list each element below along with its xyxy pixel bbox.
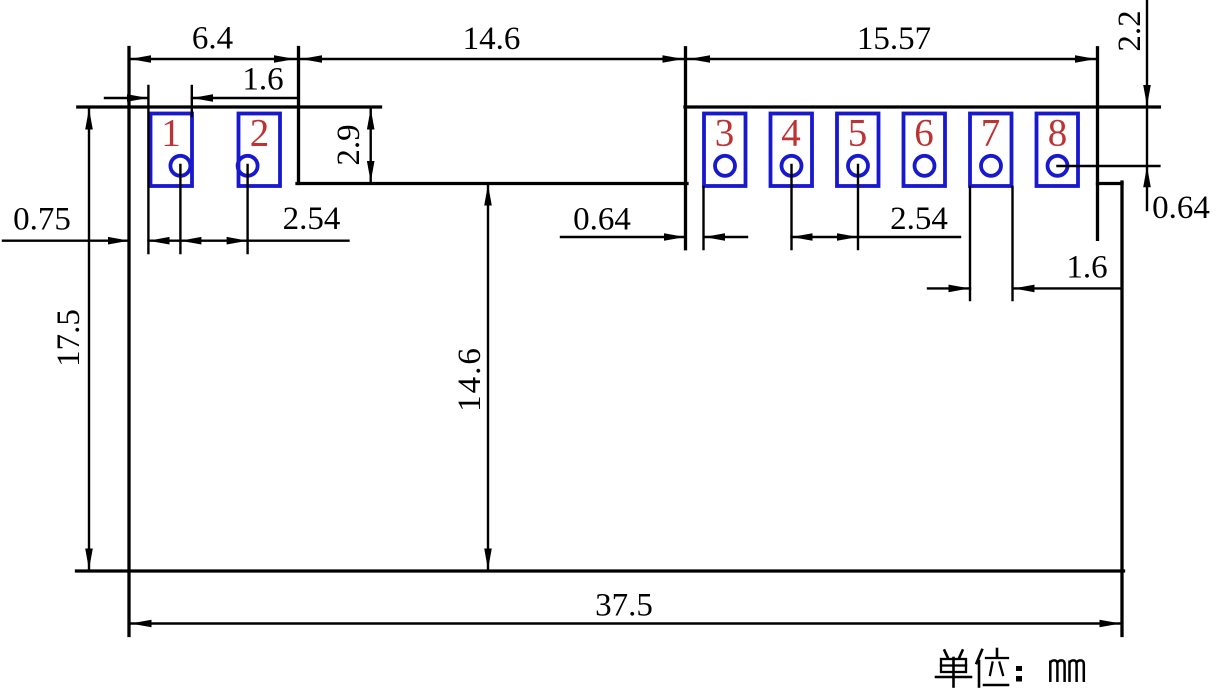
svg-text:17.5: 17.5 — [51, 309, 87, 367]
svg-text:2.2: 2.2 — [1112, 10, 1148, 51]
svg-text:1: 1 — [161, 112, 181, 155]
svg-text:1.6: 1.6 — [242, 62, 283, 98]
svg-text:6: 6 — [914, 112, 934, 155]
svg-text:2: 2 — [250, 112, 270, 155]
svg-text:14.6: 14.6 — [452, 346, 488, 412]
svg-text:5: 5 — [848, 112, 868, 155]
svg-text:0.64: 0.64 — [1152, 190, 1210, 226]
svg-text:0.64: 0.64 — [573, 202, 631, 238]
svg-text:14.6: 14.6 — [463, 21, 521, 57]
svg-text:1.6: 1.6 — [1066, 250, 1107, 286]
svg-text:37.5: 37.5 — [595, 588, 653, 624]
svg-text:6.4: 6.4 — [192, 21, 233, 57]
svg-text:3: 3 — [715, 112, 735, 155]
svg-text:0.75: 0.75 — [13, 202, 71, 238]
svg-text:8: 8 — [1048, 112, 1068, 155]
svg-text:15.57: 15.57 — [857, 21, 931, 57]
svg-text:7: 7 — [981, 112, 1001, 155]
svg-text:2.54: 2.54 — [890, 201, 948, 237]
svg-text:2.54: 2.54 — [283, 201, 341, 237]
svg-text:4: 4 — [781, 112, 801, 155]
svg-text:2.9: 2.9 — [331, 124, 367, 165]
